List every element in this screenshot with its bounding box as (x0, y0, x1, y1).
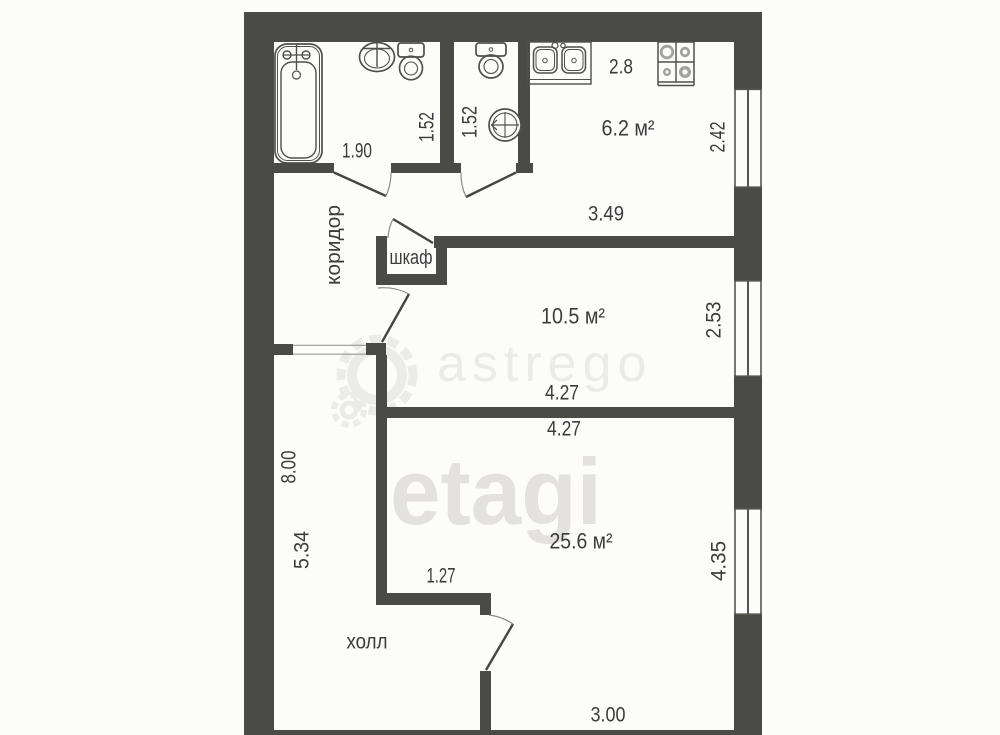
svg-text:8.00: 8.00 (278, 451, 301, 484)
svg-text:3.00: 3.00 (591, 704, 626, 727)
svg-text:5.34: 5.34 (291, 531, 314, 569)
svg-text:1.52: 1.52 (459, 106, 482, 138)
svg-text:4.27: 4.27 (547, 418, 581, 441)
svg-text:холл: холл (347, 631, 388, 654)
svg-text:10.5 м²: 10.5 м² (541, 304, 605, 329)
svg-text:2.8: 2.8 (609, 56, 633, 79)
svg-text:2.42: 2.42 (707, 122, 730, 153)
svg-text:4.35: 4.35 (708, 541, 731, 581)
svg-text:4.27: 4.27 (545, 382, 579, 405)
svg-text:шкаф: шкаф (390, 247, 433, 269)
svg-text:2.53: 2.53 (703, 302, 726, 339)
svg-text:1.52: 1.52 (416, 112, 439, 142)
svg-text:коридор: коридор (323, 205, 345, 285)
svg-text:25.6 м²: 25.6 м² (550, 529, 613, 554)
svg-text:1.27: 1.27 (427, 565, 456, 588)
svg-text:6.2 м²: 6.2 м² (602, 116, 655, 141)
svg-text:3.49: 3.49 (588, 203, 624, 226)
svg-text:1.90: 1.90 (342, 140, 372, 163)
